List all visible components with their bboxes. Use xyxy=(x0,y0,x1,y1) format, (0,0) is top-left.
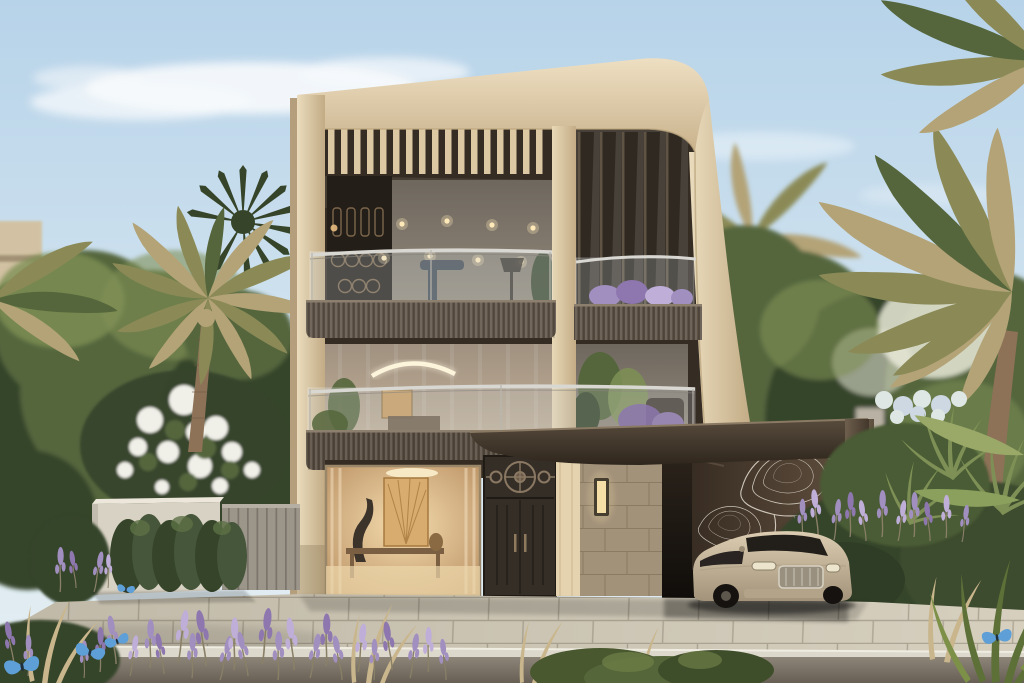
balcony-top-left xyxy=(306,250,556,338)
white-flowering-shrub xyxy=(80,370,290,520)
render-canvas: 01 xyxy=(0,0,1024,683)
console-table xyxy=(346,548,444,554)
car-headlight xyxy=(826,564,840,572)
car-wheel xyxy=(823,586,843,604)
ground-floor xyxy=(325,452,662,596)
entrance-door xyxy=(484,456,556,596)
street-strip xyxy=(0,657,1024,683)
hedge xyxy=(110,514,247,593)
door-handle xyxy=(514,534,517,552)
screen-lamp-glow xyxy=(331,225,338,232)
frame-left-pillar xyxy=(297,95,325,600)
car-mirror xyxy=(739,546,745,552)
vase xyxy=(429,533,443,551)
wall-shadow xyxy=(92,590,256,604)
chandelier xyxy=(386,468,438,478)
stone-wall xyxy=(580,452,662,596)
living-room-window xyxy=(326,466,480,596)
gold-fan-artwork xyxy=(384,478,428,546)
car-headlight xyxy=(752,562,776,570)
wall-sconce xyxy=(587,471,615,523)
door-handle xyxy=(524,534,527,552)
date-cluster xyxy=(197,309,215,327)
villa-render-scene: Luxury modern villa — daylight architect… xyxy=(0,0,1024,683)
pergola-slats xyxy=(325,128,548,174)
balcony-top-right xyxy=(574,257,702,340)
